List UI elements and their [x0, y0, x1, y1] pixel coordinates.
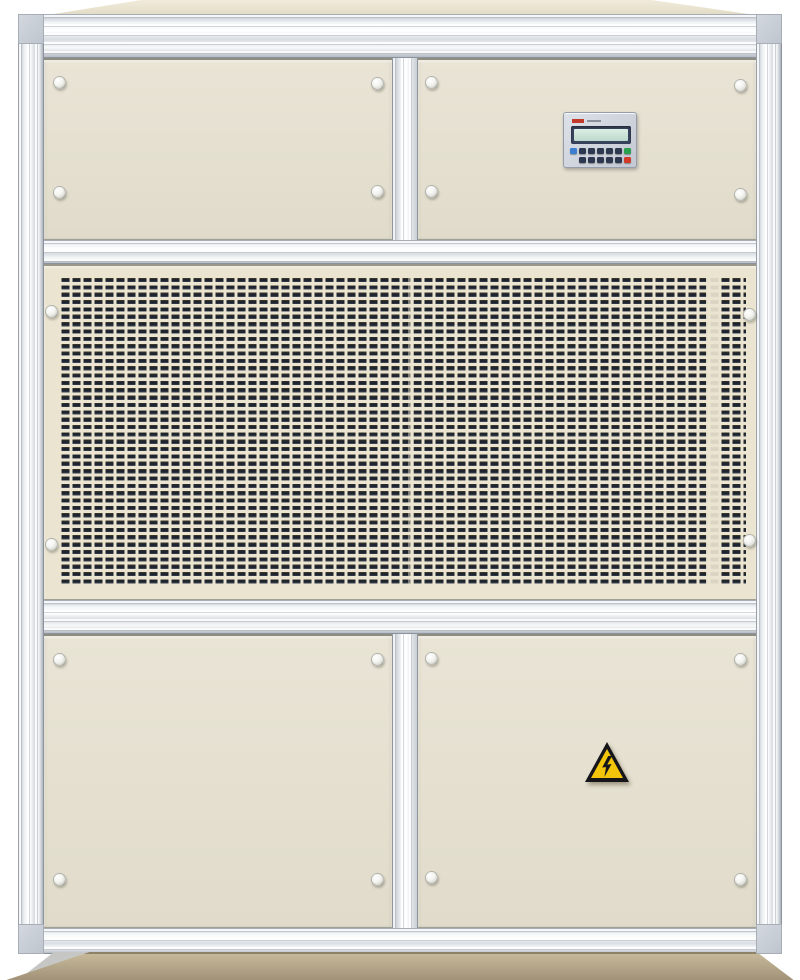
controller-button	[579, 148, 586, 154]
perforated-grille	[60, 278, 746, 584]
panel-fastener-knob	[371, 873, 384, 886]
controller-button	[606, 157, 613, 163]
controller-button	[606, 148, 613, 154]
controller-brand-mark	[572, 119, 584, 123]
controller-button	[588, 157, 595, 163]
frame-rail-top	[18, 14, 782, 58]
panel-fastener-knob	[743, 534, 756, 547]
photo-canvas	[0, 0, 800, 980]
panel-fastener-knob	[371, 653, 384, 666]
controller-button	[615, 148, 622, 154]
controller-button	[615, 157, 622, 163]
panel-fastener-knob	[53, 76, 66, 89]
controller-model-mark	[587, 120, 601, 122]
panel-fastener-knob	[45, 538, 58, 551]
frame-rail-left	[18, 14, 44, 954]
panel-fastener-knob	[53, 186, 66, 199]
panel-fastener-knob	[425, 652, 438, 665]
controller-lcd-screen	[574, 129, 628, 141]
frame-corner-cap-bottom-right	[756, 924, 782, 954]
base-plinth	[0, 952, 800, 980]
controller-button-red	[624, 157, 631, 163]
panel-fastener-knob	[425, 76, 438, 89]
frame-corner-cap-top-right	[756, 14, 782, 44]
frame-corner-cap-bottom-left	[18, 924, 44, 954]
controller-button	[588, 148, 595, 154]
mullion-top	[392, 58, 418, 240]
door-bottom-left	[44, 634, 392, 928]
controller-button	[597, 157, 604, 163]
controller-button	[597, 148, 604, 154]
frame-rail-mid-upper	[44, 240, 756, 264]
panel-fastener-knob	[734, 873, 747, 886]
controller-button	[579, 157, 586, 163]
panel-fastener-knob	[53, 653, 66, 666]
frame-corner-cap-top-left	[18, 14, 44, 44]
controller-lcd	[571, 126, 631, 144]
panel-fastener-knob	[734, 653, 747, 666]
frame-rail-mid-lower	[44, 600, 756, 634]
frame-rail-bottom	[18, 928, 782, 954]
panel-fastener-knob	[45, 305, 58, 318]
panel-fastener-knob	[743, 308, 756, 321]
panel-fastener-knob	[371, 185, 384, 198]
controller-panel	[563, 112, 637, 168]
mullion-bottom	[392, 634, 418, 928]
panel-fastener-knob	[53, 873, 66, 886]
grille-seam	[706, 278, 720, 584]
panel-fastener-knob	[425, 871, 438, 884]
frame-rail-right	[756, 14, 782, 954]
intake-grille-panel	[44, 264, 756, 600]
grille-seam	[408, 278, 414, 584]
panel-fastener-knob	[734, 188, 747, 201]
controller-button-green	[624, 148, 631, 154]
electrical-hazard-icon	[585, 742, 629, 782]
panel-fastener-knob	[371, 77, 384, 90]
door-top-left	[44, 58, 392, 240]
panel-fastener-knob	[425, 185, 438, 198]
panel-fastener-knob	[734, 79, 747, 92]
controller-button-blue	[570, 148, 577, 154]
